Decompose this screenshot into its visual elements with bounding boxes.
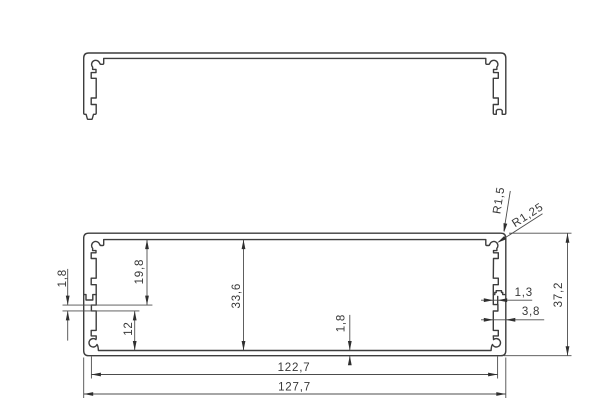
- svg-text:1,3: 1,3: [515, 287, 533, 299]
- svg-text:19,8: 19,8: [134, 259, 146, 285]
- svg-text:122,7: 122,7: [278, 362, 311, 374]
- svg-text:3,8: 3,8: [522, 306, 540, 318]
- svg-text:1,8: 1,8: [335, 314, 347, 332]
- svg-text:33,6: 33,6: [231, 283, 243, 309]
- svg-text:1,8: 1,8: [57, 269, 69, 287]
- svg-text:12: 12: [123, 321, 135, 335]
- svg-text:37,2: 37,2: [553, 282, 565, 308]
- svg-text:127,7: 127,7: [278, 382, 311, 394]
